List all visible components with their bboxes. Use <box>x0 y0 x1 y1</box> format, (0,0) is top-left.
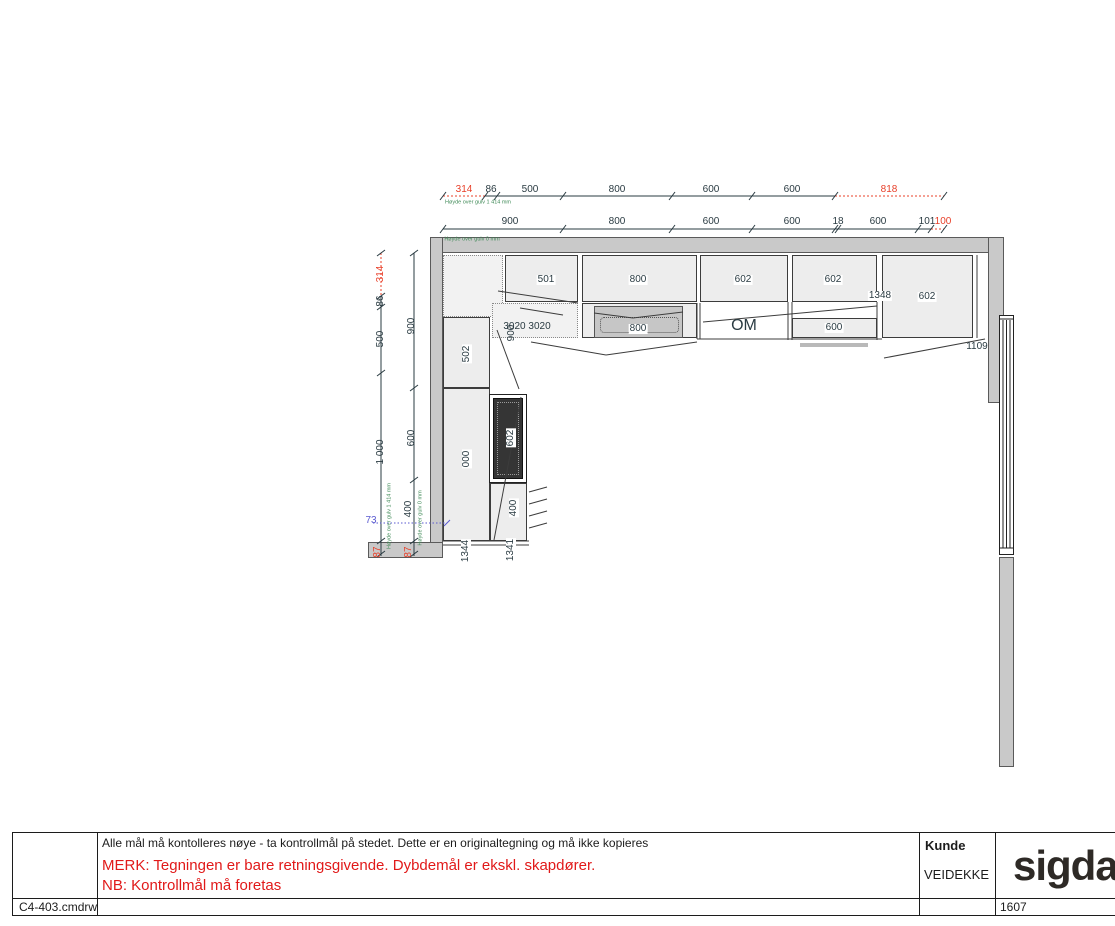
cabinet-structure-lines <box>443 255 977 545</box>
dimension-label: 87 <box>404 546 414 557</box>
cabinet-label: 800 <box>629 324 648 334</box>
dimension-label: 500 <box>376 331 386 348</box>
dimension-label: 314 <box>376 266 386 283</box>
file-name: C4-403.cmdrw <box>19 900 97 914</box>
cabinet-label: 000 <box>462 450 472 469</box>
window-mullions <box>999 319 1014 548</box>
dimension-label: 600 <box>703 185 720 195</box>
dimension-label: 600 <box>784 185 801 195</box>
hatch-marks <box>529 487 547 528</box>
drawing-linework <box>0 0 1115 926</box>
customer-label: Kunde <box>925 838 965 853</box>
title-block-border-left <box>12 832 13 916</box>
cabinet-label: OM <box>731 318 757 334</box>
warning-line-2: NB: Kontrollmål må foretas <box>102 877 281 894</box>
title-block-divider <box>12 898 1115 899</box>
dimension-label: 400 <box>404 501 414 518</box>
dimension-label: 1341 <box>506 538 516 562</box>
dimension-label: 500 <box>522 185 539 195</box>
cabinet-label: 800 <box>629 275 648 285</box>
height-note: Høyde over gulv 0 mm <box>418 490 424 545</box>
dimension-label: 314 <box>456 185 473 195</box>
dimension-label: 600 <box>407 430 417 447</box>
dimension-label: 86 <box>376 295 386 306</box>
warning-line-1: MERK: Tegningen er bare retningsgivende.… <box>102 857 595 874</box>
dimension-label: 87 <box>373 546 383 557</box>
dimension-label: 1348 <box>868 291 892 301</box>
title-block-col1 <box>97 832 98 916</box>
dimension-label: 600 <box>870 217 887 227</box>
order-number: 1607 <box>1000 900 1027 914</box>
height-note: Høyde over gulv 0 mm <box>444 237 499 243</box>
dimension-label: 400 <box>509 499 519 518</box>
dimension-label: 101 <box>919 217 936 227</box>
customer-name: VEIDEKKE <box>924 867 989 882</box>
dimension-label: 1 000 <box>376 439 386 464</box>
sigdal-logo: sigdal <box>1013 842 1115 890</box>
cabinet-label: 602 <box>918 292 937 302</box>
dimension-label: 1109 <box>966 342 988 352</box>
dimension-label: 100 <box>935 217 952 227</box>
dimension-label: 18 <box>832 217 843 227</box>
dimension-label: 900 <box>507 325 517 342</box>
dimension-label: 73 <box>365 516 376 526</box>
dimension-label: 818 <box>881 185 898 195</box>
dimension-label: 800 <box>609 185 626 195</box>
title-block-border-top <box>12 832 1115 833</box>
cabinet-label: 602 <box>824 275 843 285</box>
reference-line-73 <box>373 520 450 526</box>
cabinet-label: 501 <box>537 275 556 285</box>
dimension-label: 86 <box>485 185 496 195</box>
title-block-border-bottom <box>12 915 1115 916</box>
cabinet-label: 602 <box>506 429 516 448</box>
dimension-label: 900 <box>502 217 519 227</box>
height-note: Høyde over gulv 1 414 mm <box>445 200 511 206</box>
kitchen-plan-sheet: 31486500800600600818Høyde over gulv 1 41… <box>0 0 1115 926</box>
dimension-label: 1344 <box>461 539 471 563</box>
dimension-label: 900 <box>407 318 417 335</box>
control-note: Alle mål må kontolleres nøye - ta kontro… <box>102 836 648 850</box>
dimension-label: 600 <box>703 217 720 227</box>
title-block-col3 <box>995 832 996 916</box>
cabinet-label: 502 <box>462 345 472 364</box>
dimension-label: 600 <box>784 217 801 227</box>
cabinet-label: 600 <box>825 323 844 333</box>
height-note: Høyde over gulv 1 414 mm <box>387 483 393 549</box>
title-block-col2 <box>919 832 920 916</box>
cabinet-label: 602 <box>734 275 753 285</box>
dimension-line-top-upper <box>440 192 947 200</box>
dimension-label: 800 <box>609 217 626 227</box>
